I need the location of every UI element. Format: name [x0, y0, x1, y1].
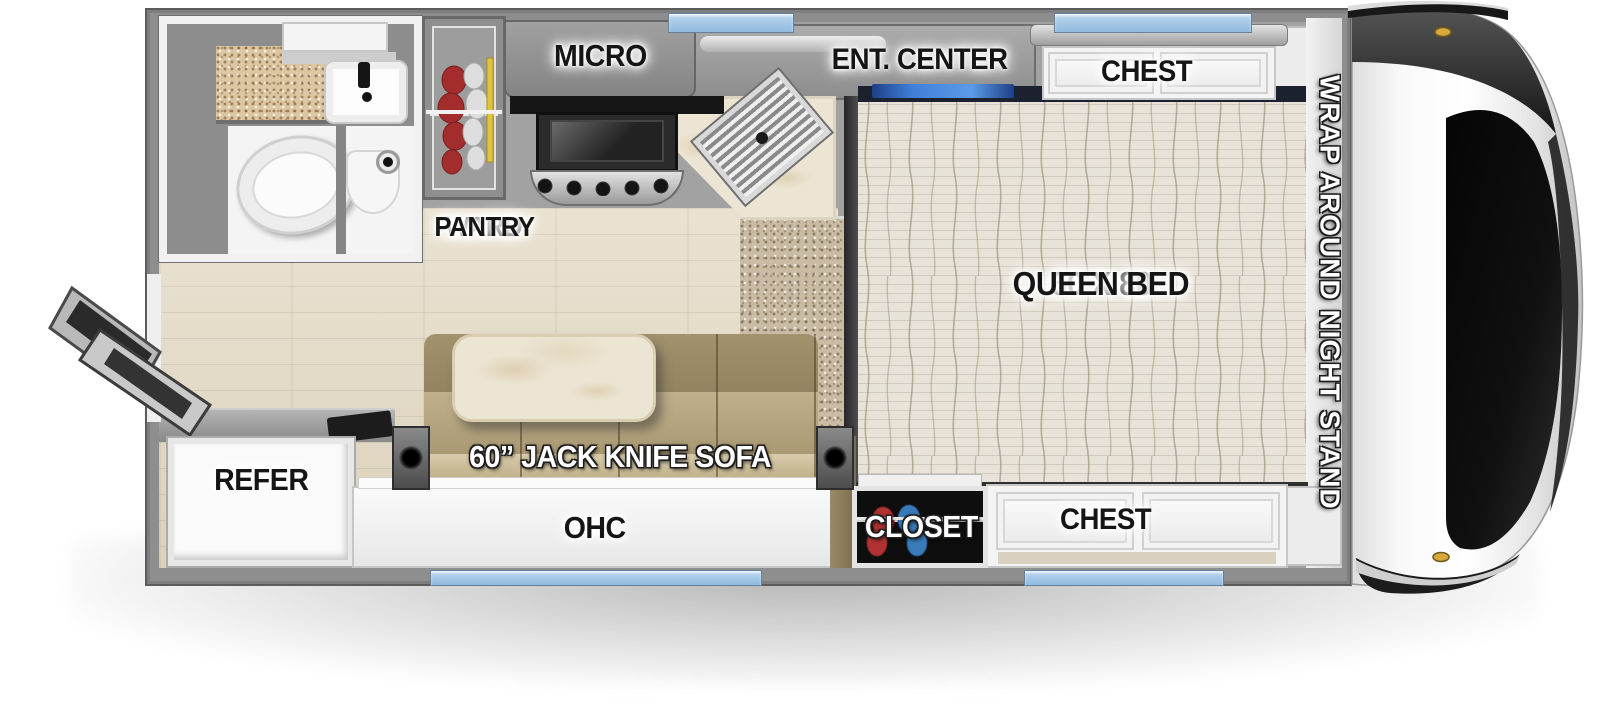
- kitchen-sink-drain: [756, 132, 768, 144]
- bed-type-text: QUEEN BED: [1013, 267, 1189, 302]
- chest-bottom-label: CHEST: [988, 498, 1224, 542]
- chest-bottom-base: [998, 552, 1276, 564]
- clearance-light-top: [1435, 28, 1451, 37]
- bathroom-divider-wall: [336, 126, 346, 254]
- speaker-cone-right: [823, 446, 847, 470]
- refer-label-text: REFER: [214, 464, 308, 497]
- micro-label-text: MICRO: [554, 40, 647, 73]
- night-stand-label: WRAP AROUND NIGHT STAND: [1308, 68, 1352, 516]
- entry-door: [40, 258, 220, 458]
- ent-center-label-text: ENT. CENTER: [832, 44, 1008, 76]
- ward-label-line2: PANTRY: [434, 212, 534, 241]
- closet-label: CLOSET: [846, 506, 996, 548]
- sofa-label: 60” JACK KNIFE SOFA: [430, 436, 810, 478]
- refer-label: REFER: [176, 458, 346, 502]
- bed-label: 60 X 80 QUEEN BED: [956, 246, 1246, 322]
- sofa-label-text: 60” JACK KNIFE SOFA: [469, 441, 771, 474]
- sofa-speaker-left: [392, 426, 430, 490]
- floorplan-stage: WARD PANTRY MICRO ENT. CENTER CHEST: [0, 0, 1600, 721]
- shower-drain: [376, 150, 400, 174]
- oven-window: [550, 120, 664, 162]
- ohc-label-text: OHC: [564, 512, 626, 545]
- clearance-light-bottom: [1433, 553, 1449, 562]
- ward-pantry-label: WARD PANTRY: [414, 196, 554, 258]
- window-top-left: [668, 13, 794, 33]
- night-stand-label-text: WRAP AROUND NIGHT STAND: [1315, 75, 1344, 510]
- window-top-right: [1054, 13, 1252, 33]
- ent-center-led-strip: [872, 84, 1014, 98]
- micro-label: MICRO: [514, 34, 686, 78]
- medicine-cabinet: [282, 22, 388, 52]
- dinette-table: [452, 334, 656, 422]
- ward-pantry-clothes: [424, 18, 504, 198]
- bathroom-faucet: [358, 62, 370, 88]
- chest-top-label-text: CHEST: [1101, 56, 1192, 88]
- window-bottom-right: [1024, 570, 1224, 586]
- ent-center-label: ENT. CENTER: [795, 40, 1045, 80]
- closet-label-text: CLOSET: [865, 511, 978, 544]
- sofa-speaker-right: [816, 426, 854, 490]
- bathroom-faucet-drain: [362, 92, 372, 102]
- range-knobs: [530, 176, 684, 196]
- chest-top-label: CHEST: [1052, 50, 1242, 94]
- speaker-cone-left: [399, 446, 423, 470]
- window-bottom-left: [430, 570, 762, 586]
- truck-nose-cap: [1348, 0, 1594, 600]
- ohc-label: OHC: [500, 506, 690, 550]
- chest-bottom-label-text: CHEST: [1060, 504, 1151, 536]
